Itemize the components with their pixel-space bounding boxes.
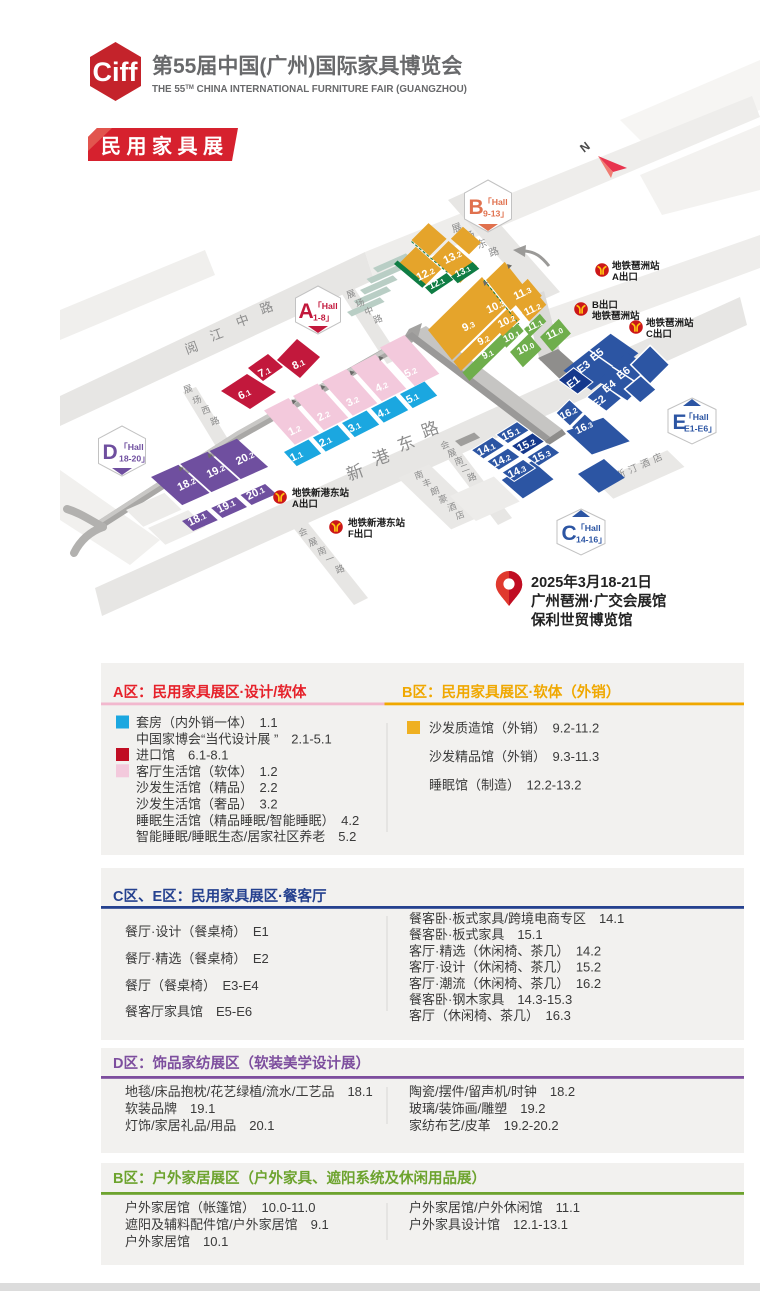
svg-text:玻璃/装饰画/雕塑 19.2: 玻璃/装饰画/雕塑 19.2	[409, 1101, 546, 1116]
svg-text:客厅·设计（休闲椅、茶几） 15.2: 客厅·设计（休闲椅、茶几） 15.2	[409, 960, 601, 975]
svg-text:F出口: F出口	[348, 528, 373, 540]
svg-text:沙发精品馆（外销） 9.3-11.3: 沙发精品馆（外销） 9.3-11.3	[429, 749, 599, 764]
svg-text:14-16」: 14-16」	[576, 535, 607, 545]
svg-text:民用家具展: 民用家具展	[101, 134, 229, 158]
svg-text:灯饰/家居礼品/用品 20.1: 灯饰/家居礼品/用品 20.1	[125, 1118, 275, 1133]
svg-text:「Hall: 「Hall	[483, 196, 508, 207]
svg-text:家纺布艺/皮革 19.2-20.2: 家纺布艺/皮革 19.2-20.2	[409, 1118, 559, 1133]
svg-text:C出口: C出口	[646, 328, 672, 340]
svg-text:1-8」: 1-8」	[313, 313, 334, 323]
svg-text:餐客厅家具馆 E5-E6: 餐客厅家具馆 E5-E6	[125, 1004, 252, 1019]
svg-text:套房（内外销一体） 1.1: 套房（内外销一体） 1.1	[136, 715, 278, 730]
svg-text:「Hall: 「Hall	[119, 441, 144, 452]
svg-text:第55届中国(广州)国际家具博览会: 第55届中国(广州)国际家具博览会	[152, 54, 462, 78]
svg-text:沙发生活馆（精品） 2.2: 沙发生活馆（精品） 2.2	[136, 780, 278, 795]
svg-text:遮阳及辅料配件馆/户外家居馆 9.1: 遮阳及辅料配件馆/户外家居馆 9.1	[125, 1217, 329, 1232]
svg-text:18-20」: 18-20」	[119, 454, 150, 464]
svg-text:「Hall: 「Hall	[576, 522, 601, 533]
svg-text:D: D	[103, 441, 118, 464]
svg-text:B区：民用家具展区·软体（外销）: B区：民用家具展区·软体（外销）	[402, 683, 620, 701]
svg-text:陶瓷/摆件/留声机/时钟 18.2: 陶瓷/摆件/留声机/时钟 18.2	[409, 1084, 575, 1099]
svg-text:睡眠生活馆（精品睡眠/智能睡眠） 4.2: 睡眠生活馆（精品睡眠/智能睡眠） 4.2	[136, 813, 359, 828]
svg-text:户外家居馆（帐篷馆） 10.0-11.0: 户外家居馆（帐篷馆） 10.0-11.0	[125, 1200, 315, 1215]
svg-text:地铁琶洲站: 地铁琶洲站	[612, 260, 660, 272]
svg-text:地铁新港东站: 地铁新港东站	[292, 487, 350, 499]
svg-text:A区：民用家具展区·设计/软体: A区：民用家具展区·设计/软体	[113, 683, 307, 701]
svg-text:进口馆 6.1-8.1: 进口馆 6.1-8.1	[136, 748, 228, 763]
svg-text:餐客卧·钢木家具 14.3-15.3: 餐客卧·钢木家具 14.3-15.3	[409, 992, 572, 1007]
svg-text:睡眠馆（制造） 12.2-13.2: 睡眠馆（制造） 12.2-13.2	[429, 778, 581, 793]
svg-text:A出口: A出口	[292, 498, 318, 510]
svg-text:餐客卧·板式家具/跨境电商专区 14.1: 餐客卧·板式家具/跨境电商专区 14.1	[409, 911, 624, 926]
svg-text:B区：户外家居展区（户外家具、遮阳系统及休闲用品展）: B区：户外家居展区（户外家具、遮阳系统及休闲用品展）	[113, 1169, 486, 1187]
svg-text:广州琶洲·广交会展馆: 广州琶洲·广交会展馆	[531, 592, 666, 610]
svg-text:餐厅·设计（餐桌椅） E1: 餐厅·设计（餐桌椅） E1	[125, 924, 269, 939]
svg-text:地铁琶洲站: 地铁琶洲站	[646, 317, 694, 329]
svg-text:客厅生活馆（软体） 1.2: 客厅生活馆（软体） 1.2	[136, 764, 278, 779]
svg-text:客厅（休闲椅、茶几） 16.3: 客厅（休闲椅、茶几） 16.3	[409, 1008, 571, 1023]
svg-text:地毯/床品抱枕/花艺绿植/流水/工艺品 18.1: 地毯/床品抱枕/花艺绿植/流水/工艺品 18.1	[125, 1084, 373, 1099]
svg-text:中国家博会“当代设计展 ” 2.1-5.1: 中国家博会“当代设计展 ” 2.1-5.1	[136, 731, 332, 746]
svg-text:A: A	[299, 300, 314, 323]
svg-text:9-13」: 9-13」	[483, 209, 509, 219]
svg-text:2025年3月18-21日: 2025年3月18-21日	[531, 573, 652, 591]
svg-text:餐厅（餐桌椅） E3-E4: 餐厅（餐桌椅） E3-E4	[125, 978, 259, 993]
svg-text:保利世贸博览馆: 保利世贸博览馆	[530, 611, 633, 629]
svg-text:软装品牌 19.1: 软装品牌 19.1	[125, 1101, 215, 1116]
svg-text:E1-E6」: E1-E6」	[684, 424, 717, 434]
svg-text:沙发质造馆（外销） 9.2-11.2: 沙发质造馆（外销） 9.2-11.2	[429, 721, 599, 736]
svg-text:沙发生活馆（奢品） 3.2: 沙发生活馆（奢品） 3.2	[136, 797, 278, 812]
svg-text:地铁琶洲站: 地铁琶洲站	[592, 310, 640, 322]
svg-text:B出口: B出口	[592, 299, 618, 311]
svg-text:户外家居馆/户外休闲馆 11.1: 户外家居馆/户外休闲馆 11.1	[409, 1200, 580, 1215]
svg-text:Ciff: Ciff	[93, 57, 139, 87]
svg-text:餐厅·精选（餐桌椅） E2: 餐厅·精选（餐桌椅） E2	[125, 951, 269, 966]
svg-text:「Hall: 「Hall	[313, 300, 338, 311]
svg-text:智能睡眠/睡眠生态/居家社区养老 5.2: 智能睡眠/睡眠生态/居家社区养老 5.2	[136, 829, 356, 844]
svg-text:餐客卧·板式家具 15.1: 餐客卧·板式家具 15.1	[409, 927, 543, 942]
svg-text:D区：饰品家纺展区（软装美学设计展）: D区：饰品家纺展区（软装美学设计展）	[113, 1054, 370, 1072]
svg-text:「Hall: 「Hall	[684, 411, 709, 422]
svg-text:地铁新港东站: 地铁新港东站	[348, 517, 406, 529]
svg-text:客厅·精选（休闲椅、茶几） 14.2: 客厅·精选（休闲椅、茶几） 14.2	[409, 943, 601, 958]
svg-text:THE 55TM CHINA INTERNATIONAL F: THE 55TM CHINA INTERNATIONAL FURNITURE F…	[152, 84, 467, 95]
svg-text:C: C	[562, 522, 577, 545]
svg-text:A出口: A出口	[612, 271, 638, 283]
svg-text:客厅·潮流（休闲椅、茶几） 16.2: 客厅·潮流（休闲椅、茶几） 16.2	[409, 976, 601, 991]
svg-text:B: B	[469, 196, 484, 219]
svg-text:户外家具设计馆 12.1-13.1: 户外家具设计馆 12.1-13.1	[409, 1217, 568, 1232]
svg-text:户外家居馆 10.1: 户外家居馆 10.1	[125, 1234, 228, 1249]
svg-text:C区、E区：民用家具展区·餐客厅: C区、E区：民用家具展区·餐客厅	[113, 887, 327, 905]
